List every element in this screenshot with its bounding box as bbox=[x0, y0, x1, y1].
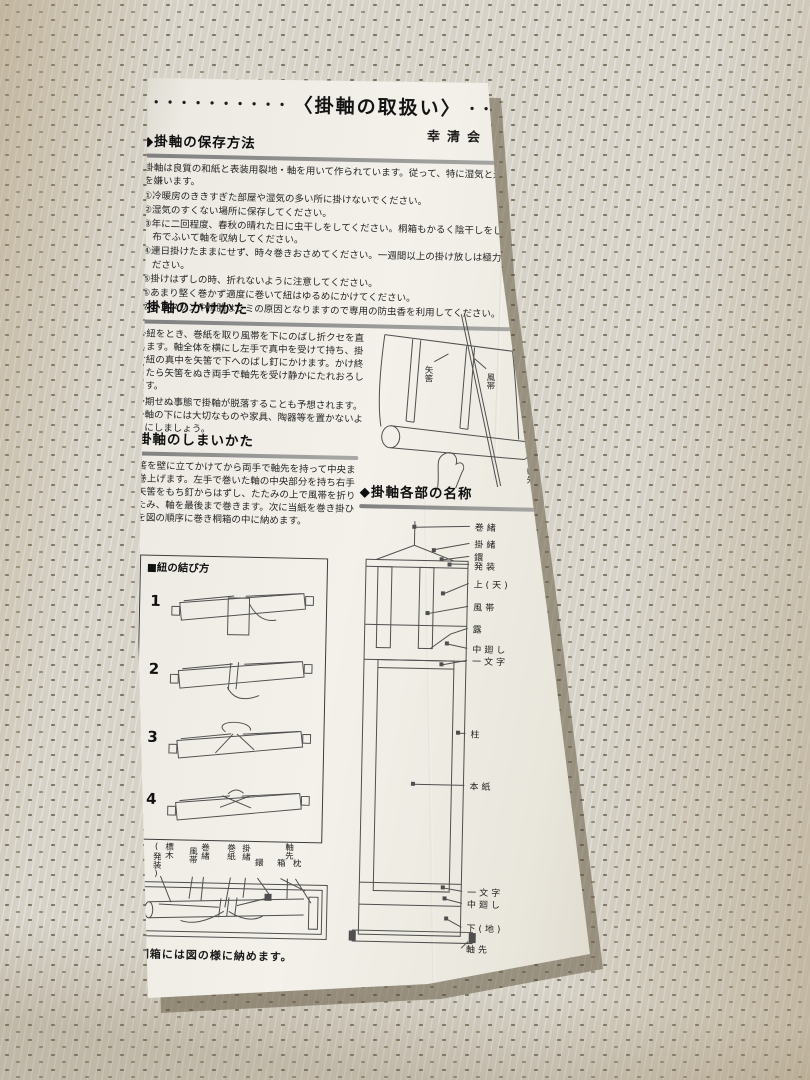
knot-step-number-2: 2 bbox=[149, 660, 160, 678]
box-label-makura: 枕 bbox=[292, 859, 301, 868]
storage-box-diagram: 標木 (発装) 風帯 巻緒 巻紙 掛緒 鐶 箱 軸先 枕 bbox=[128, 839, 335, 948]
part-label-honshi: 本紙 bbox=[469, 779, 493, 793]
box-label-futai: 風帯 bbox=[188, 847, 197, 864]
section-heading-storage: ◆掛軸の保存方法 bbox=[143, 129, 256, 151]
scroll-parts-diagram: 巻緒 掛緒 鐶 発装 上(天) 風帯 露 中廻し 一文字 柱 本紙 一文字 中廻… bbox=[346, 512, 559, 960]
knot-heading: ■紐の結び方 bbox=[147, 560, 210, 576]
section-heading-hanging: ◆掛軸のかけかた bbox=[135, 295, 248, 317]
part-label-jikusaki: 軸先 bbox=[466, 942, 490, 956]
label-yahazu: 矢筈 bbox=[422, 365, 434, 382]
knot-step-4-drawing bbox=[163, 778, 314, 841]
knot-tying-box: ■紐の結び方 1 2 3 bbox=[134, 555, 328, 844]
knot-step-1-drawing bbox=[167, 580, 318, 643]
part-label-makio: 巻緒 bbox=[475, 521, 499, 535]
box-label-makigami: 巻紙 bbox=[226, 843, 235, 860]
title-dots-left: ・・・・・・・・・・ bbox=[149, 92, 289, 114]
organization-name: 幸清会 bbox=[427, 125, 487, 145]
part-label-kakeo: 掛緒 bbox=[474, 538, 498, 552]
box-label-hako: 箱 bbox=[276, 858, 285, 867]
part-label-hashira: 柱 bbox=[470, 727, 482, 740]
box-label-kakeo: 掛緒 bbox=[241, 844, 250, 861]
scroll-parts-drawing bbox=[346, 512, 559, 960]
part-label-chuumawashi-2: 中廻し bbox=[467, 897, 503, 911]
photo-scene: ・・・・・・・・・・ 〈掛軸の取扱い〉 ・・・・・・・・・・・・・ 幸清会 ◆掛… bbox=[0, 0, 810, 1080]
section-heading-parts: ◆掛軸各部の名称 bbox=[359, 480, 472, 502]
box-label-makio: 巻緒 bbox=[200, 843, 209, 860]
section-heading-putting-away: ◆掛軸のしまいかた bbox=[126, 427, 254, 450]
box-caption: 桐箱には図の様に納めます。 bbox=[138, 946, 293, 965]
knot-step-2-drawing bbox=[166, 648, 317, 711]
hanging-body-1: 掛紐をとき、巻紙を取り風帯を下にのばし折クセを直します。軸全体を横にし左手で真中… bbox=[136, 327, 365, 397]
knot-step-number-1: 1 bbox=[150, 592, 161, 610]
section-rule bbox=[126, 451, 358, 460]
knot-step-3-drawing bbox=[165, 716, 316, 779]
part-label-hassou: 発装 bbox=[474, 560, 498, 574]
box-label-kan: 鐶 bbox=[254, 858, 263, 867]
section-rule bbox=[359, 504, 549, 512]
box-label-hassou-wood: 標木 bbox=[164, 842, 173, 859]
knot-step-number-3: 3 bbox=[147, 728, 158, 746]
knot-step-number-4: 4 bbox=[146, 790, 157, 808]
box-label-jikusaki: 軸先 bbox=[284, 843, 293, 860]
label-futai: 風帯 bbox=[484, 373, 496, 390]
part-label-ge-chi: 下(地) bbox=[466, 921, 503, 935]
putting-away-body: 矢筈を壁に立てかけてから両手で軸先を持って中央まで巻上げます。左手で巻いた軸の中… bbox=[127, 459, 364, 529]
box-label-hassou-alt: (発装) bbox=[151, 842, 160, 879]
document-title: 〈掛軸の取扱い〉 bbox=[293, 91, 462, 122]
part-label-ichimonji: 一文字 bbox=[472, 654, 508, 668]
part-label-futai: 風帯 bbox=[473, 601, 497, 615]
part-label-tsuyu: 露 bbox=[473, 623, 485, 636]
part-label-jou-ten: 上(天) bbox=[474, 578, 511, 592]
